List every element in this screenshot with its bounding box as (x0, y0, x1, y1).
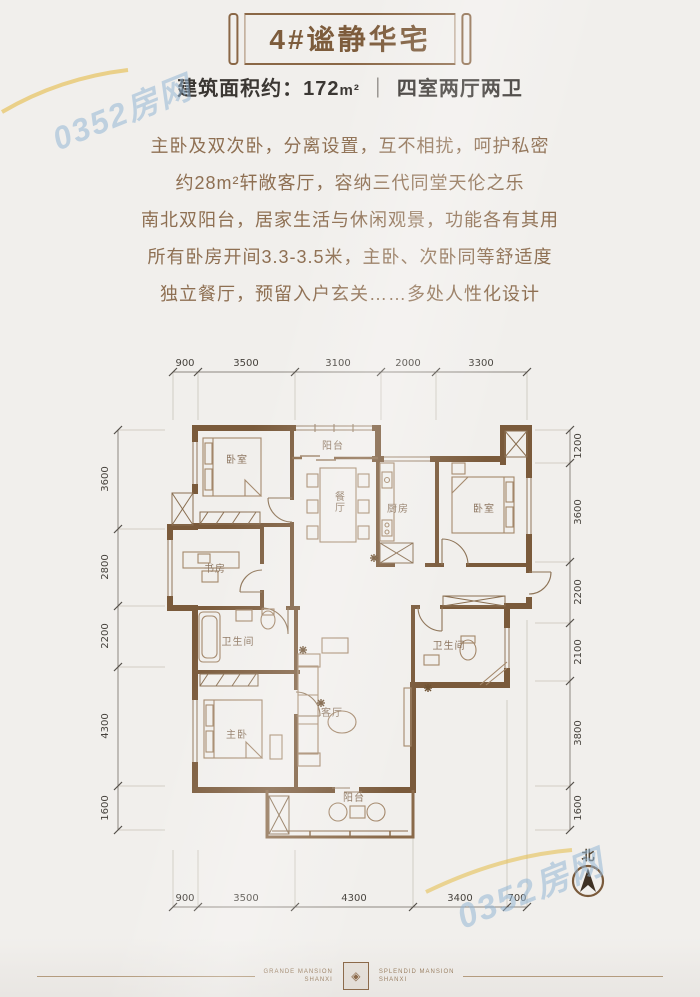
dim-left: 1600 (100, 795, 111, 820)
sink (236, 610, 252, 621)
watermark-swoosh-icon (420, 840, 580, 900)
bedroom-nw-door (268, 498, 292, 522)
room-label-study: 书房 (204, 562, 226, 575)
dim-left: 4300 (100, 713, 111, 738)
watermark-swoosh-icon (0, 60, 140, 120)
floorplan-flyer: { "banner": { "title": "4#谧静华宅" }, "subt… (0, 0, 700, 997)
dim-left: 3600 (100, 466, 111, 491)
balcony-chair (329, 803, 347, 821)
dim-top: 3500 (233, 358, 258, 369)
room-label-bath-west: 卫生间 (222, 635, 255, 648)
armchair (322, 638, 348, 653)
dim-right: 1200 (573, 433, 584, 458)
dim-left: 2200 (100, 623, 111, 648)
master-door (296, 692, 320, 716)
study-door (240, 570, 262, 592)
sofa (298, 666, 318, 754)
entry-door (529, 572, 551, 594)
dim-right: 3800 (573, 720, 584, 745)
dimension-labels: 900 3500 3100 2000 3300 900 3500 4300 34… (100, 358, 584, 904)
balcony-table (350, 806, 365, 818)
room-label-balcony-north: 阳台 (322, 439, 344, 452)
room-label-master: 主卧 (226, 728, 248, 741)
dim-top: 3300 (468, 358, 493, 369)
tv-cabinet (404, 688, 411, 746)
bedroom-ne-door (442, 539, 468, 565)
dim-right: 1600 (573, 795, 584, 820)
shower (480, 662, 507, 685)
shafts-closets (172, 431, 527, 834)
dim-top: 900 (175, 358, 194, 369)
balcony-chair (367, 803, 385, 821)
dim-bottom: 3500 (233, 893, 258, 904)
dim-bottom: 900 (175, 893, 194, 904)
sink (424, 655, 439, 665)
room-label-dining: 餐厅 (333, 490, 345, 513)
dim-right: 2200 (573, 579, 584, 604)
dim-top: 3100 (325, 358, 350, 369)
room-label-bedroom-nw: 卧室 (226, 453, 248, 466)
dim-right: 3600 (573, 499, 584, 524)
room-label-living: 客厅 (321, 706, 343, 719)
room-label-balcony-south: 阳台 (343, 791, 365, 804)
dim-bottom: 4300 (341, 893, 366, 904)
toilet (261, 611, 275, 629)
dim-left: 2800 (100, 554, 111, 579)
room-label-kitchen: 厨房 (387, 502, 409, 515)
north-balcony-divider (292, 456, 378, 460)
dim-right: 2100 (573, 639, 584, 664)
bath-east-door (418, 607, 442, 631)
room-label-bedroom-ne: 卧室 (473, 502, 495, 515)
furniture (183, 438, 514, 821)
dim-top: 2000 (395, 358, 420, 369)
room-label-bath-east: 卫生间 (433, 639, 466, 652)
